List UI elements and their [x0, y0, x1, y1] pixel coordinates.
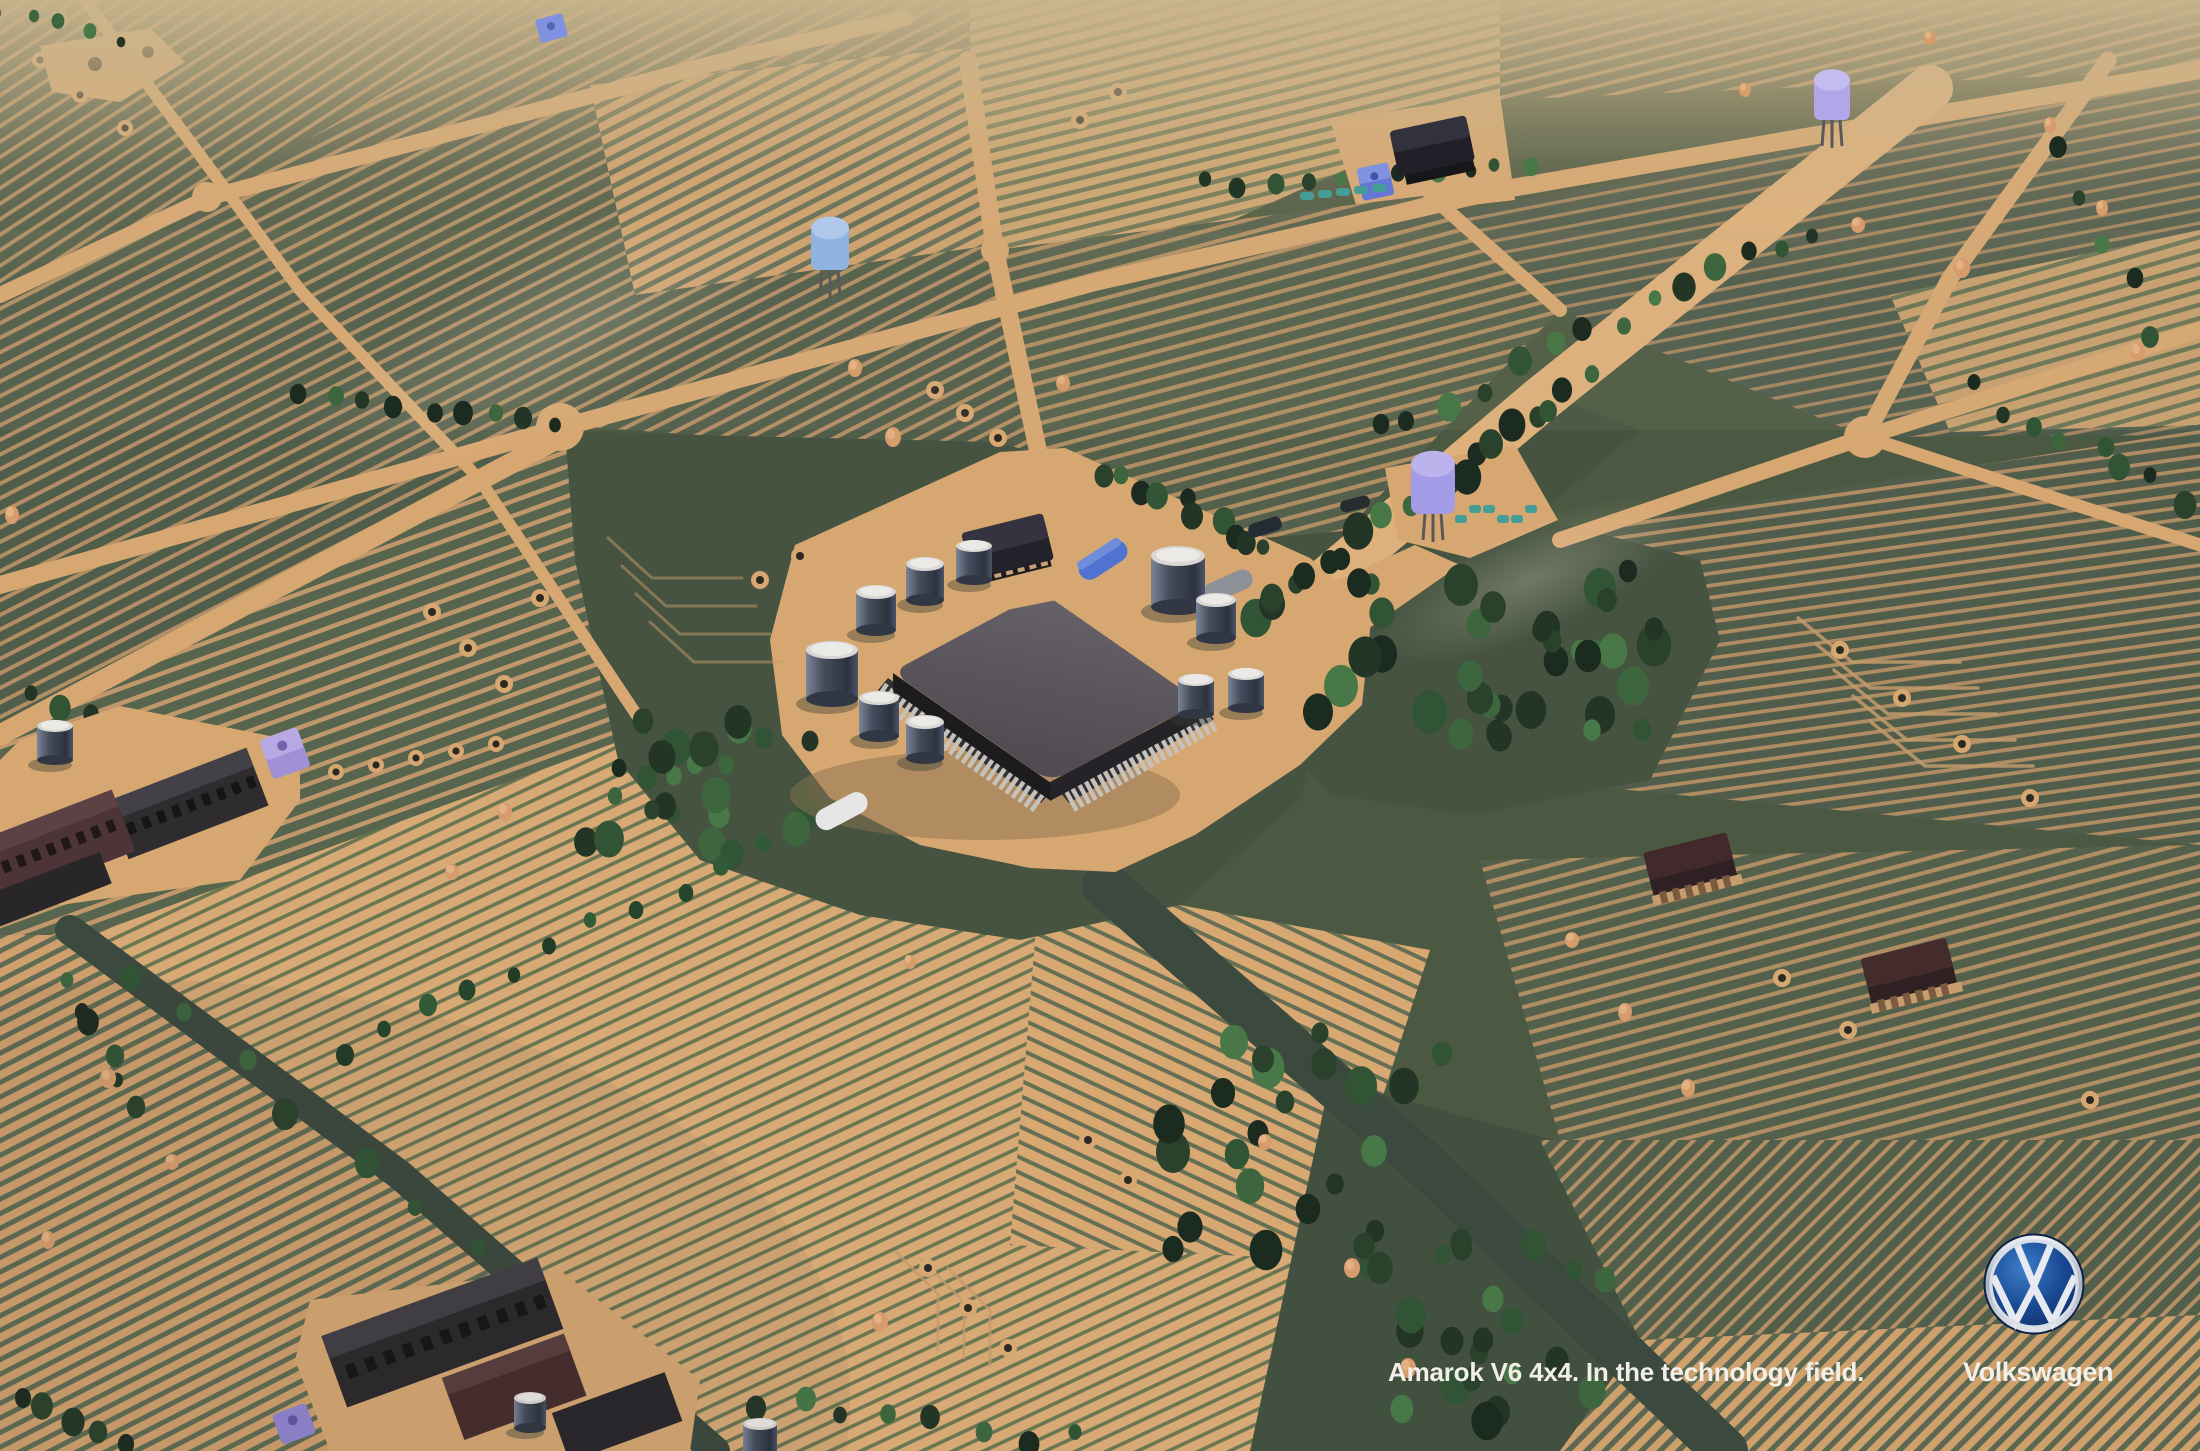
svg-text:Amarok V6 4x4. In the technolo: Amarok V6 4x4. In the technology field.	[1388, 1357, 1864, 1387]
svg-text:Volkswagen: Volkswagen	[1963, 1357, 2113, 1387]
